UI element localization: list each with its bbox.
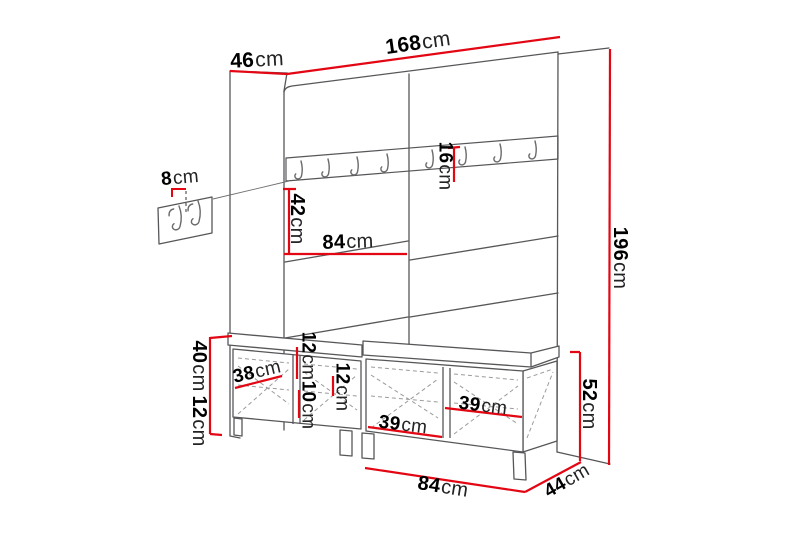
- panel-seam-right: [410, 236, 558, 260]
- coat-hook-5: [426, 150, 433, 168]
- dim-unit: cm: [255, 47, 285, 71]
- dim-label-12cm-seat-right: 12cm: [333, 363, 352, 412]
- dim-value: 84: [322, 231, 346, 254]
- left-bench-leg-right: [340, 430, 352, 456]
- dim-label-10cm: 10cm: [299, 381, 318, 430]
- dim-line-8cm: [172, 189, 186, 197]
- dim-unit: cm: [440, 476, 470, 502]
- dim-value: 12: [188, 395, 210, 418]
- wall-hook-panel: [158, 181, 289, 244]
- dim-value: 12: [332, 363, 353, 385]
- coat-hook-4: [381, 154, 388, 172]
- hook-rail-bottom-edge: [286, 159, 558, 181]
- right-bench-leg-left: [362, 433, 374, 459]
- dim-value: 39: [458, 393, 482, 416]
- dim-value: 39: [378, 412, 402, 435]
- dim-unit: cm: [298, 403, 319, 429]
- panel-top-right-depth-edge: [558, 48, 609, 54]
- dim-label-196cm: 196cm: [610, 227, 630, 290]
- dim-unit: cm: [435, 164, 456, 190]
- dim-label-52cm: 52cm: [579, 378, 599, 429]
- furniture-dimension-diagram: 46cm 168cm 8cm 16cm 42cm 84cm 196cm 40cm…: [0, 0, 800, 533]
- dim-unit: cm: [346, 230, 374, 253]
- dim-value: 12: [298, 332, 319, 354]
- dim-value: 10: [298, 381, 319, 403]
- wall-panel-leader-line: [213, 181, 289, 199]
- dim-label-84cm-panel: 84cm: [322, 231, 374, 253]
- coat-hook-1: [295, 161, 302, 179]
- dim-value: 8: [160, 168, 173, 190]
- dim-label-16cm: 16cm: [436, 142, 455, 191]
- dim-unit: cm: [286, 217, 308, 244]
- dim-unit: cm: [480, 395, 508, 419]
- dim-unit: cm: [298, 354, 319, 380]
- dim-unit: cm: [421, 27, 453, 54]
- hook-rail: [286, 136, 558, 181]
- dim-value: 40: [188, 340, 210, 363]
- dim-unit: cm: [188, 419, 210, 446]
- dim-label-12cm-seat-left: 12cm: [299, 332, 318, 381]
- dim-unit: cm: [578, 402, 600, 429]
- dim-label-12cm-legs: 12cm: [189, 395, 209, 446]
- dim-value: 46: [230, 49, 255, 73]
- dim-value: 84: [416, 472, 442, 497]
- dim-value: 16: [435, 142, 456, 164]
- dim-value: 42: [286, 193, 308, 216]
- dim-label-46cm: 46cm: [230, 48, 285, 72]
- dim-unit: cm: [172, 166, 200, 189]
- panel-seam-right-lower: [410, 293, 558, 317]
- coat-hook-8: [529, 141, 536, 159]
- panel-front-top-edge: [284, 52, 558, 92]
- dim-unit: cm: [332, 385, 353, 411]
- dim-unit: cm: [188, 364, 210, 391]
- right-bench-leg-right: [513, 452, 526, 480]
- coat-hook-3: [351, 157, 358, 175]
- right-bench-side-face: [523, 361, 557, 452]
- dim-label-8cm: 8cm: [160, 167, 199, 189]
- coat-hooks: [295, 141, 536, 179]
- coat-hook-2: [322, 159, 329, 177]
- dim-value: 52: [578, 378, 600, 401]
- furniture-line-art: [0, 0, 800, 533]
- dim-value: 196: [609, 227, 631, 261]
- coat-hook-6: [459, 147, 466, 165]
- hook-rail-top-edge: [286, 136, 558, 158]
- coat-hook-7: [494, 144, 501, 162]
- wall-hook-panel-board: [158, 197, 212, 244]
- dim-unit: cm: [400, 414, 428, 438]
- dim-unit: cm: [609, 262, 631, 289]
- dim-label-42cm: 42cm: [287, 193, 307, 244]
- dim-line-40cm-12cm: [210, 336, 232, 435]
- left-bench-leg-left: [234, 418, 242, 436]
- dim-label-40cm: 40cm: [189, 340, 209, 391]
